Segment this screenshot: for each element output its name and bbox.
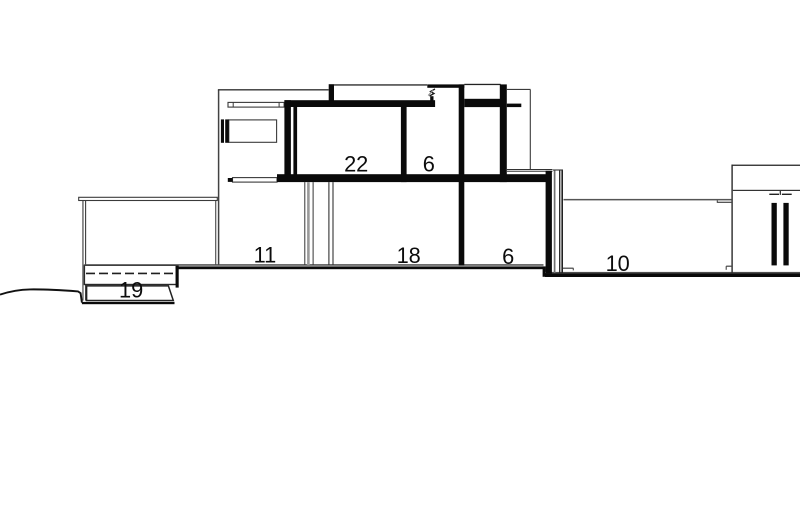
svg-text:18: 18	[397, 243, 421, 268]
svg-text:19: 19	[119, 278, 143, 303]
svg-text:22: 22	[344, 151, 368, 176]
svg-text:11: 11	[254, 243, 277, 268]
svg-text:10: 10	[606, 251, 630, 276]
svg-text:6: 6	[502, 244, 514, 269]
svg-text:6: 6	[423, 151, 435, 176]
